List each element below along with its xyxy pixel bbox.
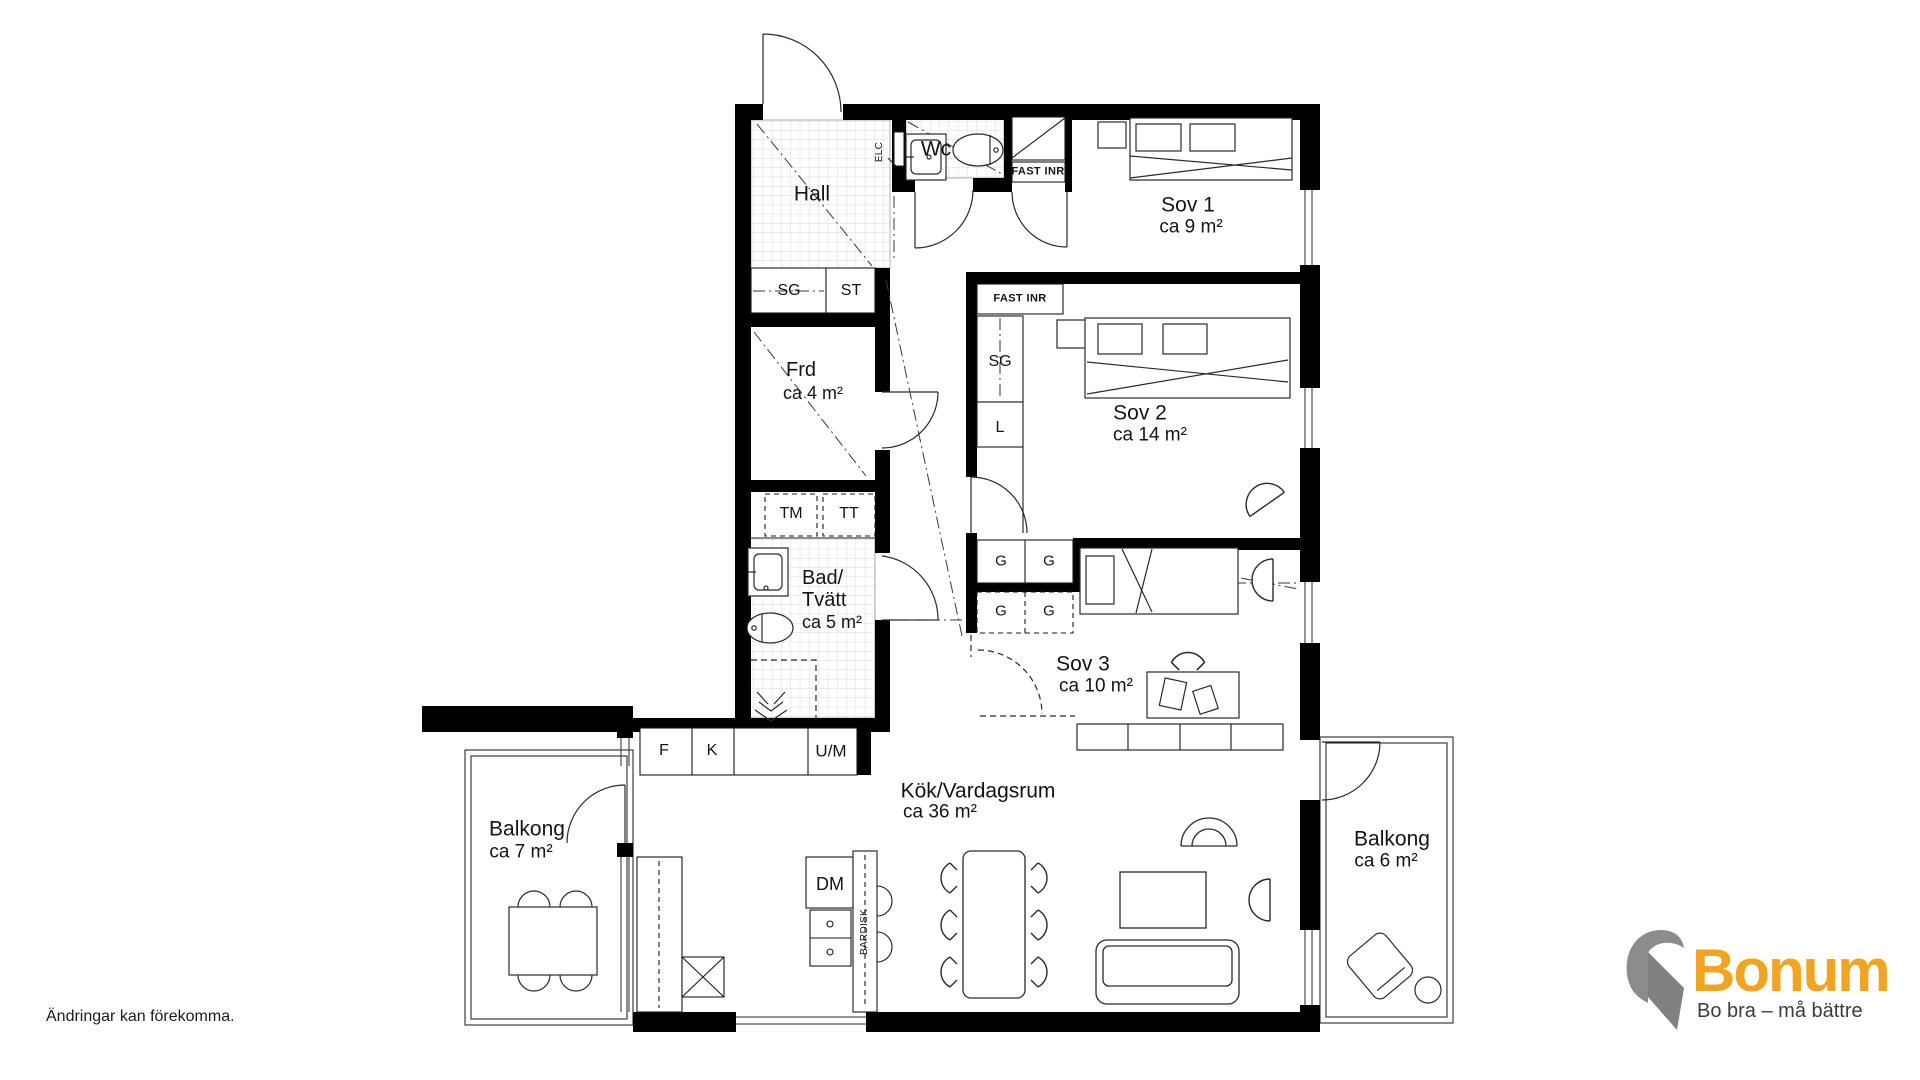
room-label-sov3: Sov 3 <box>1056 654 1110 675</box>
bonum-brand-text: Bonum <box>1692 936 1889 1005</box>
closet-g-solid <box>977 540 1073 583</box>
f-label: F <box>659 743 669 759</box>
bonum-logo-mark <box>1627 930 1684 1030</box>
g-label-2: G <box>1043 554 1055 569</box>
closet-g-dashed <box>977 592 1073 633</box>
room-area-sov2: ca 14 m² <box>1113 426 1187 445</box>
room-area-sov1: ca 9 m² <box>1159 218 1222 237</box>
sov2-furniture <box>1057 318 1290 516</box>
bardisk-label: BARDISK <box>860 909 870 955</box>
room-area-bad: ca 5 m² <box>802 613 862 631</box>
balcony-right-furniture <box>1344 930 1441 1003</box>
room-label-balkong-left: Balkong <box>489 819 565 840</box>
bad-sink <box>748 548 788 596</box>
room-area-balkong-right: ca 6 m² <box>1354 852 1417 871</box>
kitchen-counter-left <box>637 857 724 1012</box>
sov3-furniture <box>1077 548 1283 750</box>
fast-inr-label-1: FAST INR <box>1011 167 1064 178</box>
tm-label: TM <box>779 506 802 522</box>
k-label: K <box>707 743 718 759</box>
wc-toilet <box>953 134 1003 166</box>
bonum-tagline: Bo bra – må bättre <box>1697 1000 1863 1023</box>
window-sov1 <box>1305 190 1312 265</box>
room-area-sov3: ca 10 m² <box>1059 677 1133 696</box>
balcony-left-furniture <box>509 891 597 991</box>
balcony-armchair <box>1344 930 1415 1002</box>
sov2-door <box>971 477 1027 533</box>
sg-label-sov2: SG <box>988 354 1011 370</box>
fast-inr-label-2: FAST INR <box>993 294 1046 305</box>
nightstand <box>1057 320 1087 348</box>
g-label-3: G <box>995 604 1007 619</box>
desk <box>1147 653 1239 719</box>
nightstand <box>1098 122 1126 148</box>
sov1-furniture <box>1098 118 1292 180</box>
sg-label-hall: SG <box>777 283 800 299</box>
disclaimer-text: Ändringar kan förekomma. <box>46 1008 235 1026</box>
um-label: U/M <box>815 743 846 760</box>
kitchen <box>637 728 892 1012</box>
elc-cabinet <box>894 132 904 166</box>
room-label-wc: Wc <box>921 139 951 160</box>
tt-label: TT <box>839 506 859 522</box>
g-label-1: G <box>995 554 1007 569</box>
frd-door <box>882 392 938 448</box>
room-label-sov2: Sov 2 <box>1113 403 1167 424</box>
living-armchair <box>1249 879 1270 921</box>
balcony-table <box>509 907 597 975</box>
bad-toilet <box>747 613 793 643</box>
glazing-left <box>621 738 629 1012</box>
g-label-4: G <box>1043 604 1055 619</box>
bad-door <box>882 556 938 620</box>
coffee-table <box>1120 872 1206 928</box>
room-label-hall: Hall <box>794 184 830 205</box>
room-label-bad-1: Bad/ <box>802 568 843 588</box>
sov1-door <box>1012 192 1067 247</box>
dining-table <box>963 851 1025 998</box>
entry-door <box>763 34 841 112</box>
room-area-frd: ca 4 m² <box>783 384 843 402</box>
room-label-kok: Kök/Vardagsrum <box>901 781 1056 802</box>
window-kitchen-bottom <box>736 1017 866 1024</box>
balcony-side-table <box>1415 977 1441 1003</box>
room-label-balkong-right: Balkong <box>1354 829 1430 850</box>
room-label-bad-2: Tvätt <box>802 590 846 610</box>
wc-door <box>915 190 973 248</box>
room-area-balkong-left: ca 7 m² <box>489 843 552 862</box>
floorplan-page: Hall Wc ELC FAST INR Sov 1 ca 9 m² FAST … <box>0 0 1920 1080</box>
sofa <box>1096 940 1239 1004</box>
elc-label: ELC <box>875 142 885 162</box>
living-furniture <box>941 818 1270 1004</box>
room-label-sov1: Sov 1 <box>1161 195 1215 216</box>
dm-label: DM <box>816 875 844 893</box>
balcony-left-door <box>567 785 625 843</box>
st-label-hall: ST <box>841 283 861 299</box>
balcony-left-railing <box>465 750 633 1025</box>
window-sov3 <box>1305 582 1312 643</box>
l-label-sov2: L <box>996 420 1005 436</box>
bar-stools <box>877 886 892 962</box>
floorplan-drawing <box>0 0 1920 1080</box>
sideboard <box>1077 724 1283 750</box>
window-sov2 <box>1305 388 1312 448</box>
lounge-chair <box>1181 818 1237 846</box>
room-area-kok: ca 36 m² <box>903 803 977 822</box>
balcony-right-door <box>1322 742 1380 800</box>
window-living <box>1305 930 1312 1005</box>
room-label-frd: Frd <box>786 360 816 380</box>
